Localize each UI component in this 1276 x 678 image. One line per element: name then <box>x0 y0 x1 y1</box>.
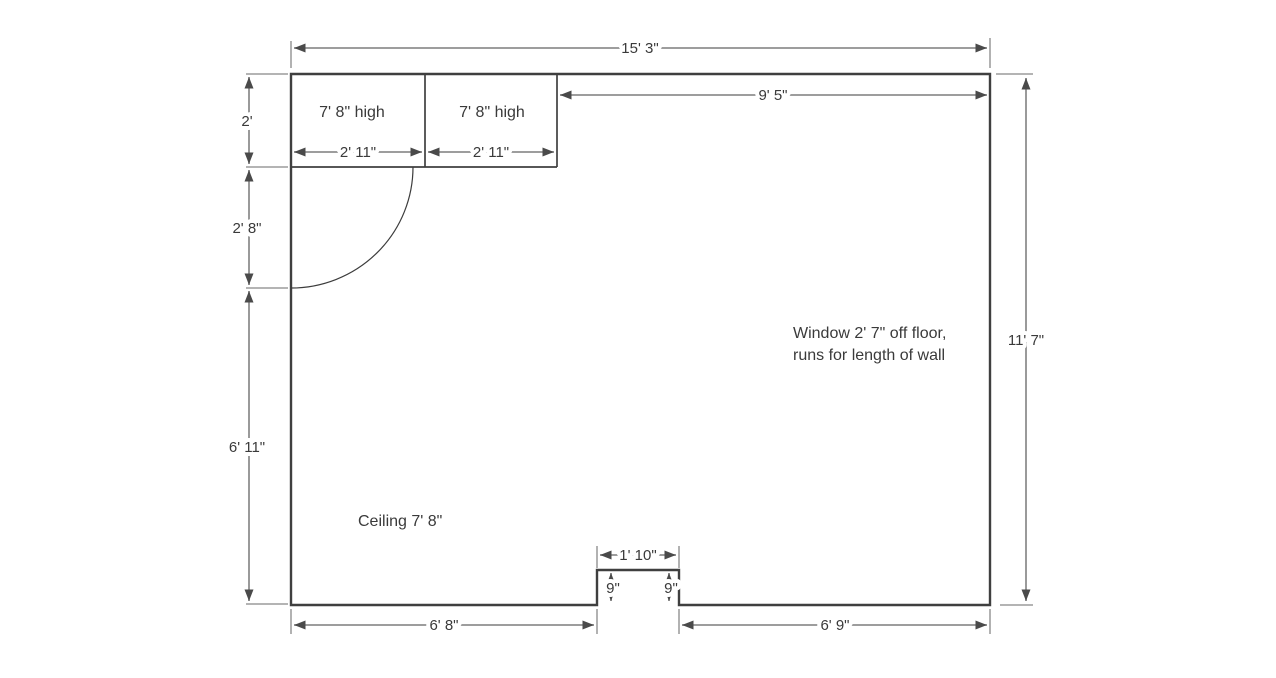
window-note-line2: runs for length of wall <box>793 347 945 364</box>
dim-notch-depth-left-label: 9" <box>606 580 620 597</box>
dim-top-right-segment-label: 9' 5" <box>758 87 787 104</box>
door-swing-arc <box>291 167 413 288</box>
dim-bottom-left-segment: 6' 8" <box>294 617 594 634</box>
dim-closet-right-width-label: 2' 11" <box>473 144 509 161</box>
dim-left-bottom-segment-label: 6' 11" <box>229 439 265 456</box>
dim-room-width-label: 15' 3" <box>621 40 658 57</box>
dim-left-top-segment-label: 2' <box>241 113 252 130</box>
dim-room-height-label: 11' 7" <box>1008 332 1044 349</box>
dim-closet-right-width: 2' 11" <box>428 144 554 161</box>
dim-closet-left-width-label: 2' 11" <box>340 144 376 161</box>
floor-plan-canvas: 15' 3" 9' 5" 2' 2' 8" 6' 11" 11' 7" <box>0 0 1276 678</box>
window-note-line1: Window 2' 7" off floor, <box>793 325 946 342</box>
dim-bottom-left-segment-label: 6' 8" <box>429 617 458 634</box>
dim-left-bottom-segment: 6' 11" <box>229 291 265 601</box>
dim-closet-left-width: 2' 11" <box>294 144 422 161</box>
floor-plan-drawing: 15' 3" 9' 5" 2' 2' 8" 6' 11" 11' 7" <box>0 0 1276 678</box>
closet-left-height-note: 7' 8" high <box>319 104 385 121</box>
ceiling-note: Ceiling 7' 8" <box>358 513 442 530</box>
closet-right-height-note: 7' 8" high <box>459 104 525 121</box>
dim-left-door-segment: 2' 8" <box>232 170 261 285</box>
dim-notch-depth-right: 9" <box>664 573 678 601</box>
dim-left-door-segment-label: 2' 8" <box>232 220 261 237</box>
dim-notch-depth-left: 9" <box>606 573 620 601</box>
dim-room-width: 15' 3" <box>294 40 987 57</box>
dim-notch-depth-right-label: 9" <box>664 580 678 597</box>
dim-notch-width: 1' 10" <box>600 547 676 564</box>
dim-notch-width-label: 1' 10" <box>619 547 656 564</box>
dim-left-top-segment: 2' <box>241 77 252 164</box>
dim-top-right-segment: 9' 5" <box>560 87 987 104</box>
dim-room-height: 11' 7" <box>1008 78 1044 601</box>
dim-bottom-right-segment: 6' 9" <box>682 617 987 634</box>
dim-bottom-right-segment-label: 6' 9" <box>820 617 849 634</box>
